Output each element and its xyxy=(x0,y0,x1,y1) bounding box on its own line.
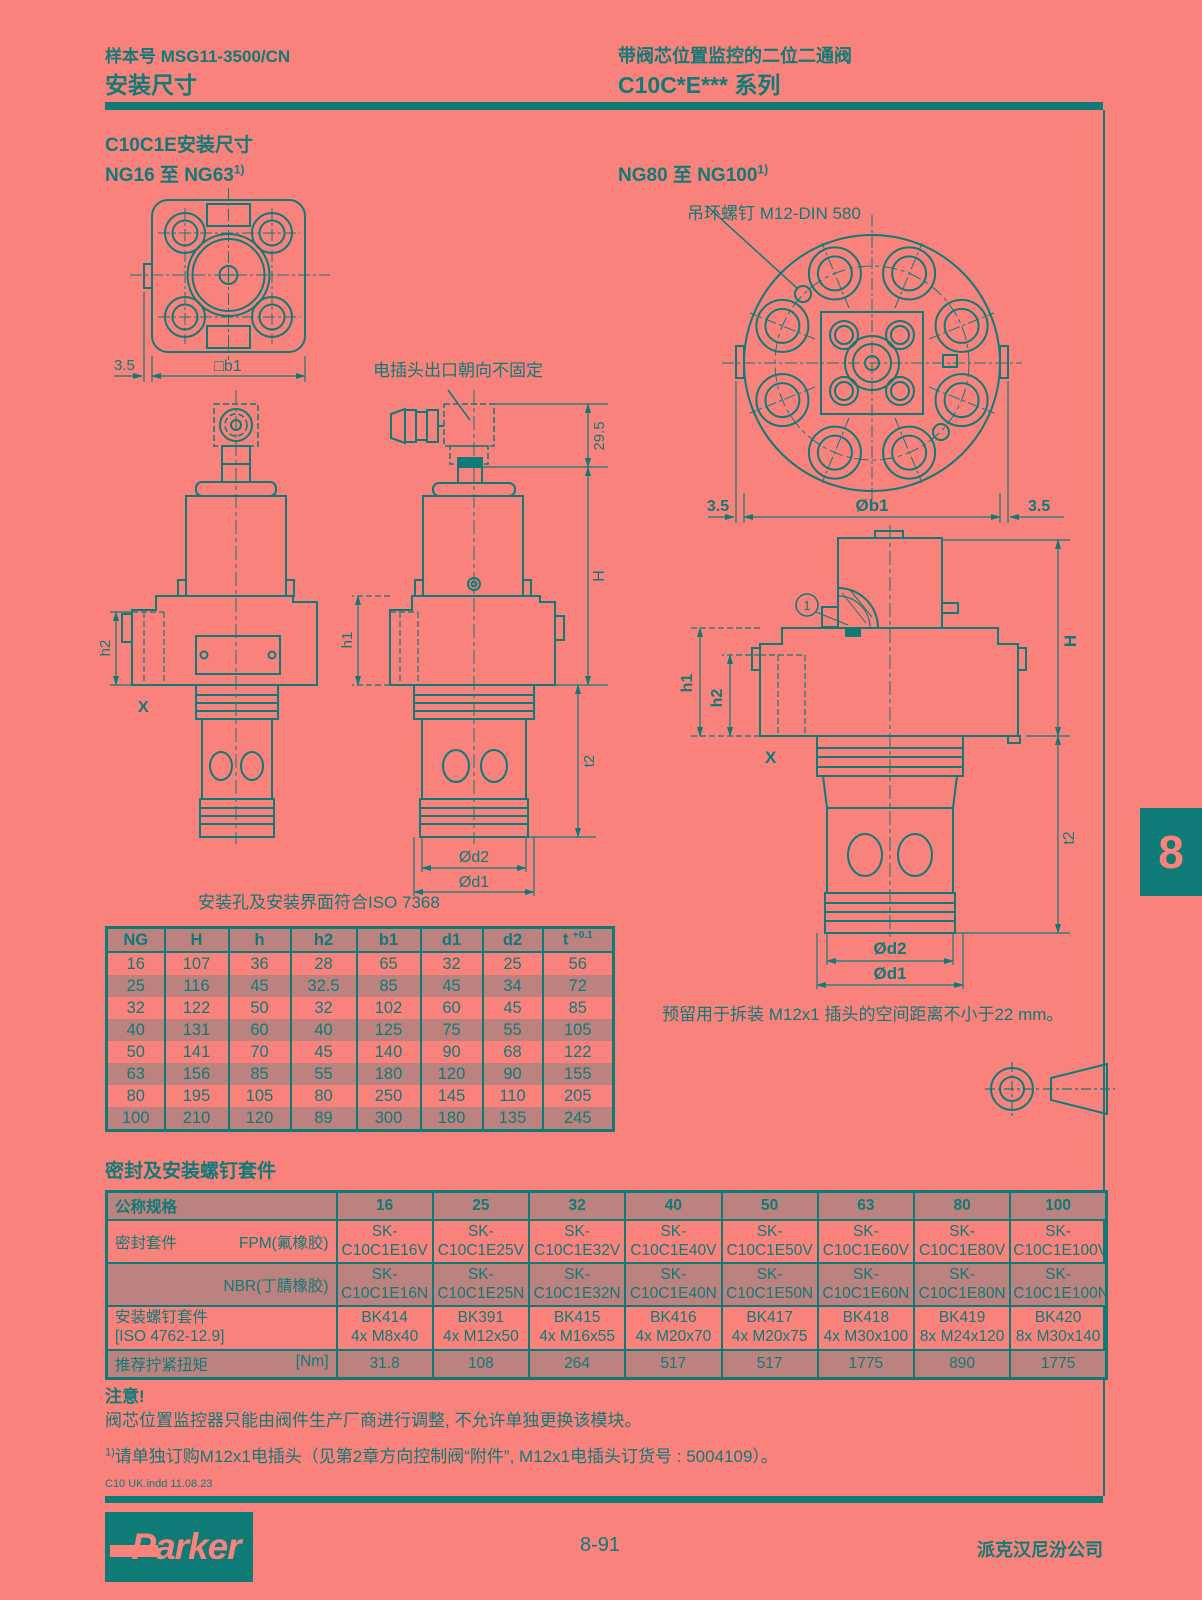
eyebolt-hole xyxy=(933,424,949,440)
size-range-right-text: NG80 至 NG100 xyxy=(618,165,757,186)
cell: 105 xyxy=(543,1019,614,1041)
cell: SK-C10C1E50N xyxy=(722,1263,818,1306)
cell: 122 xyxy=(543,1041,614,1063)
cell: BK4198x M24x120 xyxy=(914,1306,1010,1349)
dim-29-5-label: 29.5 xyxy=(591,421,608,450)
t-base: t xyxy=(563,931,569,949)
torque-row-label: 推荐拧紧扭矩[Nm] xyxy=(107,1350,337,1379)
screw-spec: 4x M20x70 xyxy=(628,1328,718,1347)
size-header: 40 xyxy=(625,1192,721,1221)
cell: BK4164x M20x70 xyxy=(625,1306,721,1349)
col-header: h xyxy=(229,928,291,953)
bolt-kit-label-line1: 安装螺钉套件 xyxy=(115,1309,329,1328)
dim-x-label: X xyxy=(138,699,149,716)
catalog-number: 样本号 MSG11-3500/CN xyxy=(105,42,290,67)
cell: SK-C10C1E50V xyxy=(722,1220,818,1263)
size-header: 50 xyxy=(722,1192,818,1221)
dim-b1-dia-label: Øb1 xyxy=(855,496,888,515)
cell: 34 xyxy=(483,975,543,997)
sk-prefix: SK- xyxy=(821,1223,911,1242)
torque-row: 推荐拧紧扭矩[Nm] 31.8 108 264 517 517 1775 890… xyxy=(107,1350,1107,1379)
nbr-row-label: NBR(丁腈橡胶) xyxy=(107,1263,337,1306)
page-number: 8-91 xyxy=(500,1534,700,1557)
screw-spec: 8x M30x140 xyxy=(1013,1328,1103,1347)
t-tolerance: +0.1 xyxy=(573,930,593,941)
screw-spec: 4x M20x75 xyxy=(725,1328,815,1347)
part-code: C10C1E40N xyxy=(628,1285,718,1304)
kit-number: BK416 xyxy=(628,1309,718,1328)
cell: 90 xyxy=(483,1063,543,1085)
cell: 180 xyxy=(357,1063,421,1085)
dim-3-5-right-label: 3.5 xyxy=(1028,498,1050,515)
cell: 120 xyxy=(229,1107,291,1131)
bolt-kit-label-line2: [ISO 4762-12.9] xyxy=(115,1328,329,1347)
dim-t2-label: t2 xyxy=(581,755,598,768)
cell: 156 xyxy=(165,1063,229,1085)
cell: 131 xyxy=(165,1019,229,1041)
sk-prefix: SK- xyxy=(628,1223,718,1242)
eyebolt-leader-line xyxy=(708,207,798,289)
sk-prefix: SK- xyxy=(436,1266,526,1285)
screw-spec: 4x M12x50 xyxy=(436,1328,526,1347)
cell: 36 xyxy=(229,952,291,975)
projection-symbol-icon xyxy=(985,1058,1115,1120)
cell: 45 xyxy=(421,975,483,997)
cell: 145 xyxy=(421,1085,483,1107)
cell: BK4184x M30x100 xyxy=(818,1306,914,1349)
cell: SK-C10C1E25N xyxy=(433,1263,529,1306)
cell: SK-C10C1E80N xyxy=(914,1263,1010,1306)
footnote-marker: 1) xyxy=(757,163,768,177)
size-header: 100 xyxy=(1010,1192,1106,1221)
part-code: C10C1E25V xyxy=(436,1242,526,1261)
cell: SK-C10C1E32V xyxy=(529,1220,625,1263)
table-row: 321225032102604585 xyxy=(107,997,614,1019)
cell: 517 xyxy=(625,1350,721,1379)
cell: 40 xyxy=(107,1019,165,1041)
dim-h2-label: h2 xyxy=(100,640,114,657)
sk-prefix: SK- xyxy=(821,1266,911,1285)
cell: 100 xyxy=(107,1107,165,1131)
table-row: 5014170451409068122 xyxy=(107,1041,614,1063)
dim-d2-label: Ød2 xyxy=(873,939,906,958)
cell: 1775 xyxy=(1010,1350,1106,1379)
cell: 55 xyxy=(291,1063,357,1085)
bolt-kit-row: 安装螺钉套件[ISO 4762-12.9] BK4144x M8x40 BK39… xyxy=(107,1306,1107,1349)
cell: 141 xyxy=(165,1041,229,1063)
cell: SK-C10C1E40V xyxy=(625,1220,721,1263)
kit-number: BK417 xyxy=(725,1309,815,1328)
footer-rule xyxy=(105,1496,1103,1503)
page-title: 安装尺寸 xyxy=(105,66,197,100)
cell: 63 xyxy=(107,1063,165,1085)
cell: 105 xyxy=(229,1085,291,1107)
part-code: C10C1E16V xyxy=(340,1242,430,1261)
cell: 65 xyxy=(357,952,421,975)
kit-number: BK418 xyxy=(821,1309,911,1328)
sk-prefix: SK- xyxy=(340,1223,430,1242)
dim-3-5-left-label: 3.5 xyxy=(707,498,729,515)
elevation-drawings-ng16-63: h2 X h1 29.5 H t2 Ød2 Ød1 xyxy=(100,388,620,908)
cell: 80 xyxy=(291,1085,357,1107)
round-flange-top-view xyxy=(708,207,1064,523)
cell: 102 xyxy=(357,997,421,1019)
sk-prefix: SK- xyxy=(917,1266,1007,1285)
dim-h2-label: h2 xyxy=(709,689,726,708)
cell: 108 xyxy=(433,1350,529,1379)
cell: 68 xyxy=(483,1041,543,1063)
cell: 85 xyxy=(543,997,614,1019)
series-title: C10C*E*** 系列 xyxy=(618,66,780,100)
cell: SK-C10C1E60N xyxy=(818,1263,914,1306)
cell: SK-C10C1E16N xyxy=(337,1263,433,1306)
cell: 32 xyxy=(421,952,483,975)
screw-spec: 4x M16x55 xyxy=(532,1328,622,1347)
size-header: 25 xyxy=(433,1192,529,1221)
part-code: C10C1E80N xyxy=(917,1285,1007,1304)
fpm-row: 密封套件FPM(氟橡胶) SK-C10C1E16V SK-C10C1E25V S… xyxy=(107,1220,1107,1263)
cell: 250 xyxy=(357,1085,421,1107)
screw-spec: 8x M24x120 xyxy=(917,1328,1007,1347)
print-info: C10 UK.indd 11.08.23 xyxy=(105,1478,212,1490)
cell: SK-C10C1E16V xyxy=(337,1220,433,1263)
cell: 89 xyxy=(291,1107,357,1131)
part-code: C10C1E25N xyxy=(436,1285,526,1304)
col-header: d1 xyxy=(421,928,483,953)
cell: 40 xyxy=(291,1019,357,1041)
cell: BK4174x M20x75 xyxy=(722,1306,818,1349)
cell: 85 xyxy=(229,1063,291,1085)
cell: 107 xyxy=(165,952,229,975)
part-code: C10C1E32V xyxy=(532,1242,622,1261)
cell: SK-C10C1E60V xyxy=(818,1220,914,1263)
sk-prefix: SK- xyxy=(1013,1266,1103,1285)
col-header: d2 xyxy=(483,928,543,953)
cell: 50 xyxy=(107,1041,165,1063)
sk-prefix: SK- xyxy=(436,1223,526,1242)
left-valve-elevation xyxy=(122,390,317,844)
cell: 50 xyxy=(229,997,291,1019)
cell: 80 xyxy=(107,1085,165,1107)
dim-d2-label: Ød2 xyxy=(459,849,489,866)
footnote-marker: 1) xyxy=(234,163,245,177)
cell: 125 xyxy=(357,1019,421,1041)
cell: SK-C10C1E80V xyxy=(914,1220,1010,1263)
cell: SK-C10C1E100N xyxy=(1010,1263,1106,1306)
dim-d1-label: Ød1 xyxy=(873,964,906,983)
chapter-tab: 8 xyxy=(1140,808,1202,896)
col-header: NG xyxy=(107,928,165,953)
cell: 205 xyxy=(543,1085,614,1107)
cell: SK-C10C1E100V xyxy=(1010,1220,1106,1263)
seal-kit-table: 公称规格 16 25 32 40 50 63 80 100 密封套件FPM(氟橡… xyxy=(105,1190,1108,1380)
cell: 25 xyxy=(107,975,165,997)
dim-h1-label: h1 xyxy=(679,674,696,693)
footnote-body: 请单独订购M12x1电插头（见第2章方向控制阀“附件”, M12x1电插头订货号… xyxy=(115,1447,778,1466)
cell: 85 xyxy=(357,975,421,997)
centerlines xyxy=(130,188,330,360)
dim-t2-label: t2 xyxy=(1061,831,1078,844)
drawings-ng80-100: 3.5 Øb1 3.5 1 h1 h2 X H t2 Ød2 Ød1 xyxy=(660,193,1110,993)
cell: 70 xyxy=(229,1041,291,1063)
elevation-ng80-100 xyxy=(752,525,1026,941)
seal-table-header-row: 公称规格 16 25 32 40 50 63 80 100 xyxy=(107,1192,1107,1221)
footnote-line: 1)请单独订购M12x1电插头（见第2章方向控制阀“附件”, M12x1电插头订… xyxy=(105,1442,778,1467)
dim-b1-label: □b1 xyxy=(214,358,242,375)
col-header: b1 xyxy=(357,928,421,953)
part-code: C10C1E16N xyxy=(340,1285,430,1304)
part-code: C10C1E60N xyxy=(821,1285,911,1304)
cell: 32.5 xyxy=(291,975,357,997)
sk-prefix: SK- xyxy=(1013,1223,1103,1242)
cell: 75 xyxy=(421,1019,483,1041)
dim-3-5-label: 3.5 xyxy=(114,357,135,374)
cell: 45 xyxy=(483,997,543,1019)
cell: 31.8 xyxy=(337,1350,433,1379)
size-header: 63 xyxy=(818,1192,914,1221)
cell: 32 xyxy=(291,997,357,1019)
dim-d1-label: Ød1 xyxy=(459,874,489,891)
col-header: H xyxy=(165,928,229,953)
dim-h-label: H xyxy=(1061,635,1080,647)
cell: 72 xyxy=(543,975,614,997)
parker-logo-arrow xyxy=(110,1545,158,1557)
cell: 28 xyxy=(291,952,357,975)
cell: 116 xyxy=(165,975,229,997)
dimension-table-header-row: NG H h h2 b1 d1 d2 t +0.1 xyxy=(107,928,614,953)
attention-title: 注意! xyxy=(105,1382,145,1407)
cell: 110 xyxy=(483,1085,543,1107)
cell: BK4208x M30x140 xyxy=(1010,1306,1106,1349)
cell: 264 xyxy=(529,1350,625,1379)
fpm-label: FPM(氟橡胶) xyxy=(239,1231,329,1253)
sk-prefix: SK- xyxy=(628,1266,718,1285)
torque-label: 推荐拧紧扭矩 xyxy=(115,1353,208,1375)
cell: 45 xyxy=(229,975,291,997)
section-title-mounting: C10C1E安装尺寸 xyxy=(105,130,253,157)
sk-prefix: SK- xyxy=(917,1223,1007,1242)
bolt-kit-label: 安装螺钉套件[ISO 4762-12.9] xyxy=(107,1306,337,1349)
part-code: C10C1E60V xyxy=(821,1242,911,1261)
part-code: C10C1E100N xyxy=(1013,1285,1103,1304)
dim-h-label: H xyxy=(591,570,608,582)
cell: BK3914x M12x50 xyxy=(433,1306,529,1349)
part-code: C10C1E80V xyxy=(917,1242,1007,1261)
nbr-row: NBR(丁腈橡胶) SK-C10C1E16N SK-C10C1E25N SK-C… xyxy=(107,1263,1107,1306)
cell: SK-C10C1E25V xyxy=(433,1220,529,1263)
sk-prefix: SK- xyxy=(532,1223,622,1242)
cell: 140 xyxy=(357,1041,421,1063)
sk-prefix: SK- xyxy=(340,1266,430,1285)
callout-1-number: 1 xyxy=(803,598,810,613)
table-row: 8019510580250145110205 xyxy=(107,1085,614,1107)
footnote-sup: 1) xyxy=(105,1446,115,1458)
kit-number: BK419 xyxy=(917,1309,1007,1328)
col-header: h2 xyxy=(291,928,357,953)
spec-label: 公称规格 xyxy=(107,1192,337,1221)
header-rule xyxy=(105,102,1103,110)
cell: 890 xyxy=(914,1350,1010,1379)
catalog-page: 样本号 MSG11-3500/CN 安装尺寸 带阀芯位置监控的二位二通阀 C10… xyxy=(0,0,1202,1600)
part-code: C10C1E40V xyxy=(628,1242,718,1261)
part-code: C10C1E100V xyxy=(1013,1242,1103,1261)
cell: 155 xyxy=(543,1063,614,1085)
clearance-note: 预留用于拆装 M12x1 插头的空间距离不小于22 mm。 xyxy=(662,1000,1063,1025)
table-row: 251164532.585453472 xyxy=(107,975,614,997)
part-code: C10C1E50V xyxy=(725,1242,815,1261)
cell: 120 xyxy=(421,1063,483,1085)
size-range-left-text: NG16 至 NG63 xyxy=(105,165,234,186)
cell: SK-C10C1E32N xyxy=(529,1263,625,1306)
cell: BK4144x M8x40 xyxy=(337,1306,433,1349)
cell: 32 xyxy=(107,997,165,1019)
size-range-left: NG16 至 NG631) xyxy=(105,160,245,187)
kit-number: BK414 xyxy=(340,1309,430,1328)
screw-spec: 4x M30x100 xyxy=(821,1328,911,1347)
company-name: 派克汉尼汾公司 xyxy=(853,1536,1103,1562)
kit-number: BK420 xyxy=(1013,1309,1103,1328)
cell: 56 xyxy=(543,952,614,975)
fpm-row-label: 密封套件FPM(氟橡胶) xyxy=(107,1220,337,1263)
dim-h1-label: h1 xyxy=(339,632,356,649)
cell: 135 xyxy=(483,1107,543,1131)
table-row: 16107362865322556 xyxy=(107,952,614,975)
seal-kit-label: 密封套件 xyxy=(115,1231,177,1253)
parker-logo: Parker xyxy=(105,1512,253,1582)
seal-section-title: 密封及安装螺钉套件 xyxy=(105,1156,276,1183)
cell: 517 xyxy=(722,1350,818,1379)
sk-prefix: SK- xyxy=(725,1223,815,1242)
plug-orientation-note: 电插头出口朝向不固定 xyxy=(373,356,543,381)
col-header-t: t +0.1 xyxy=(543,928,614,953)
part-code: C10C1E32N xyxy=(532,1285,622,1304)
cell: 210 xyxy=(165,1107,229,1131)
cell: 122 xyxy=(165,997,229,1019)
cell: 245 xyxy=(543,1107,614,1131)
right-valve-elevation xyxy=(390,390,564,844)
size-range-right: NG80 至 NG1001) xyxy=(618,160,768,187)
kit-number: BK391 xyxy=(436,1309,526,1328)
table-row: 63156855518012090155 xyxy=(107,1063,614,1085)
cell: 25 xyxy=(483,952,543,975)
size-header: 32 xyxy=(529,1192,625,1221)
attention-body: 阀芯位置监控器只能由阀件生产厂商进行调整, 不允许单独更换该模块。 xyxy=(105,1406,641,1431)
size-header: 16 xyxy=(337,1192,433,1221)
cell: BK4154x M16x55 xyxy=(529,1306,625,1349)
dimension-table: NG H h h2 b1 d1 d2 t +0.1 16107362865322… xyxy=(105,926,615,1132)
dimension-lines xyxy=(110,404,608,896)
table-row: 4013160401257555105 xyxy=(107,1019,614,1041)
sk-prefix: SK- xyxy=(532,1266,622,1285)
sk-prefix: SK- xyxy=(725,1266,815,1285)
cell: 180 xyxy=(421,1107,483,1131)
table-row: 10021012089300180135245 xyxy=(107,1107,614,1131)
torque-unit: [Nm] xyxy=(296,1353,329,1375)
product-description: 带阀芯位置监控的二位二通阀 xyxy=(618,42,852,68)
cell: 16 xyxy=(107,952,165,975)
cell: 1775 xyxy=(818,1350,914,1379)
cell: SK-C10C1E40N xyxy=(625,1263,721,1306)
screw-spec: 4x M8x40 xyxy=(340,1328,430,1347)
cell: 195 xyxy=(165,1085,229,1107)
cell: 300 xyxy=(357,1107,421,1131)
cell: 90 xyxy=(421,1041,483,1063)
cell: 60 xyxy=(421,997,483,1019)
part-code: C10C1E50N xyxy=(725,1285,815,1304)
cell: 55 xyxy=(483,1019,543,1041)
cell: 45 xyxy=(291,1041,357,1063)
cell: 60 xyxy=(229,1019,291,1041)
size-header: 80 xyxy=(914,1192,1010,1221)
top-view-drawing-ng16-63: 3.5 □b1 xyxy=(100,188,360,388)
kit-number: BK415 xyxy=(532,1309,622,1328)
dim-x-label: X xyxy=(765,748,777,767)
